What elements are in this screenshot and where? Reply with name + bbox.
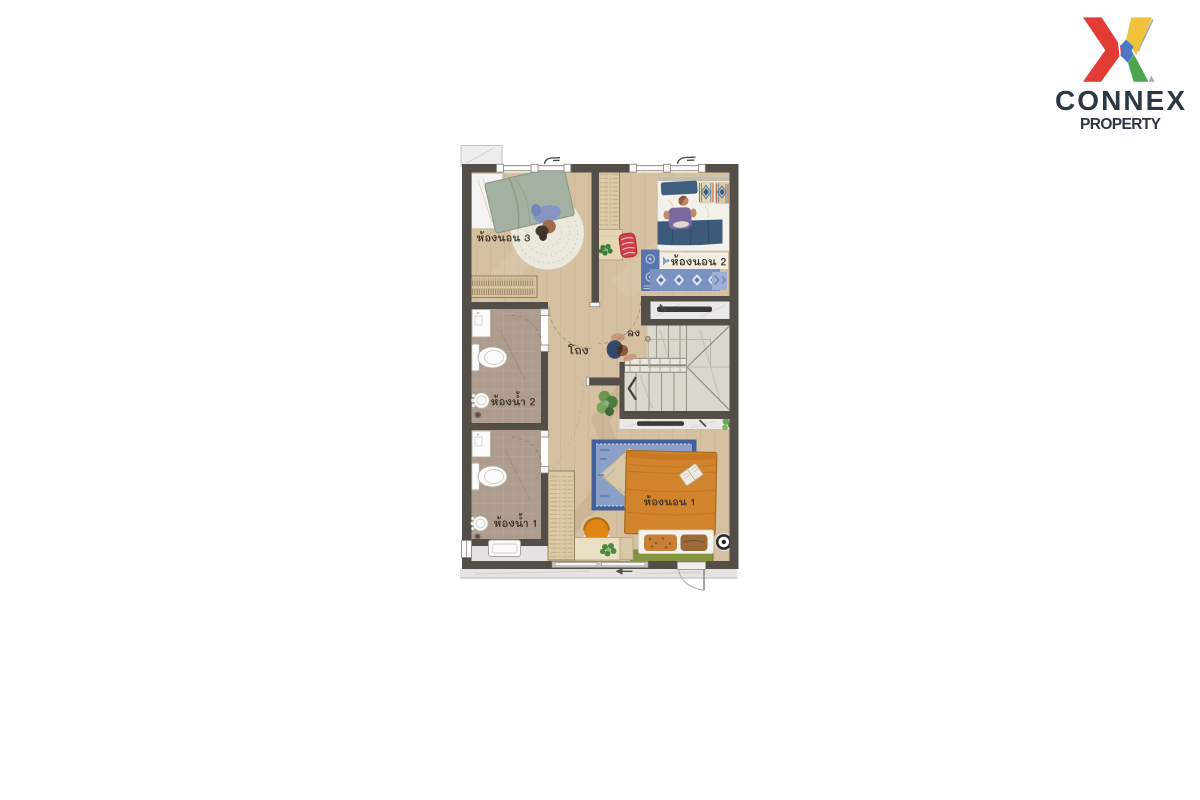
svg-text:CONNEX: CONNEX [1055,85,1185,116]
svg-text:PROPERTY: PROPERTY [1080,116,1162,133]
